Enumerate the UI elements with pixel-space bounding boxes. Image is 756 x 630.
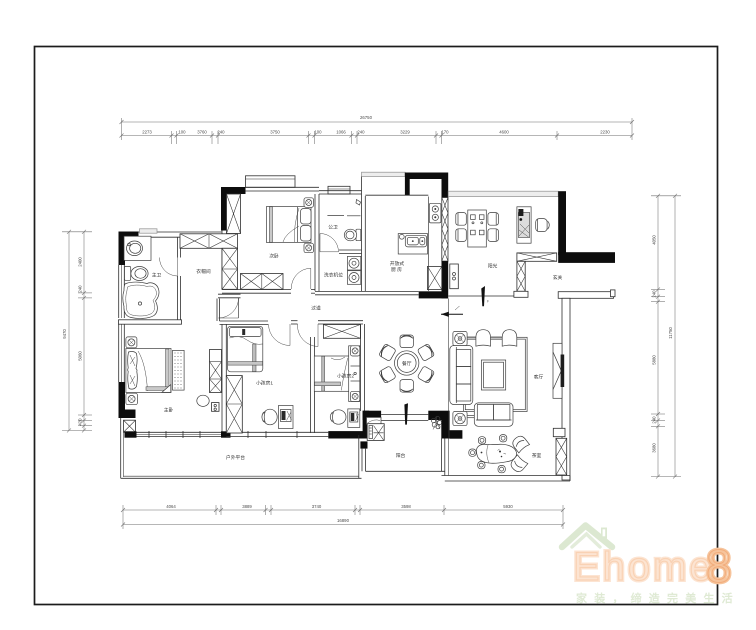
svg-text:洗衣机位: 洗衣机位: [324, 272, 343, 279]
svg-text:4050: 4050: [652, 235, 657, 245]
svg-text:户外平台: 户外平台: [226, 454, 245, 461]
svg-text:26750: 26750: [360, 115, 373, 120]
svg-text:过道: 过道: [311, 305, 321, 312]
svg-text:9470: 9470: [62, 329, 67, 339]
svg-text:厨 房: 厨 房: [391, 266, 402, 273]
svg-text:100: 100: [178, 130, 186, 135]
svg-text:茶室: 茶室: [532, 452, 542, 459]
svg-text:240: 240: [652, 290, 657, 298]
svg-text:240: 240: [652, 416, 657, 424]
svg-text:玄关: 玄关: [553, 274, 563, 281]
svg-text:3740: 3740: [312, 504, 322, 509]
svg-text:2273: 2273: [142, 130, 152, 135]
svg-text:5060: 5060: [78, 351, 83, 361]
svg-text:240: 240: [217, 130, 225, 135]
svg-text:开放式: 开放式: [390, 260, 405, 267]
svg-text:3598: 3598: [401, 504, 411, 509]
svg-text:餐厅: 餐厅: [402, 360, 412, 367]
svg-text:5930: 5930: [503, 504, 513, 509]
svg-text:8: 8: [706, 540, 732, 592]
svg-text:1066: 1066: [336, 130, 346, 135]
svg-text:3229: 3229: [400, 130, 410, 135]
svg-text:100: 100: [314, 130, 322, 135]
svg-text:420: 420: [78, 418, 83, 426]
svg-text:240: 240: [357, 130, 365, 135]
svg-text:F: F: [487, 300, 489, 304]
svg-text:主卫: 主卫: [152, 272, 162, 279]
svg-text:阳台: 阳台: [396, 452, 406, 459]
svg-text:小孩房2: 小孩房2: [337, 372, 354, 379]
svg-text:3750: 3750: [270, 130, 280, 135]
svg-text:170: 170: [441, 130, 449, 135]
svg-text:衣帽间: 衣帽间: [196, 268, 211, 275]
svg-text:主卧: 主卧: [164, 407, 174, 414]
svg-text:阳光: 阳光: [488, 263, 498, 270]
svg-text:Ehome: Ehome: [573, 545, 715, 589]
svg-text:3680: 3680: [652, 443, 657, 453]
svg-text:2400: 2400: [78, 257, 83, 267]
svg-text:2230: 2230: [600, 130, 610, 135]
svg-text:11750: 11750: [668, 327, 673, 339]
svg-text:次卧: 次卧: [269, 252, 279, 259]
svg-text:16890: 16890: [337, 518, 350, 523]
svg-text:4600: 4600: [499, 130, 509, 135]
svg-text:5880: 5880: [652, 355, 657, 365]
svg-text:3760: 3760: [197, 130, 207, 135]
svg-text:3889: 3889: [242, 504, 252, 509]
svg-text:客厅: 客厅: [534, 374, 544, 381]
svg-text:公卫: 公卫: [328, 224, 338, 230]
svg-text:小孩房1: 小孩房1: [256, 380, 273, 387]
svg-text:4064: 4064: [166, 504, 176, 509]
svg-text:家装，缔造完美生活: 家装，缔造完美生活: [576, 591, 740, 605]
svg-text:240: 240: [78, 285, 83, 293]
